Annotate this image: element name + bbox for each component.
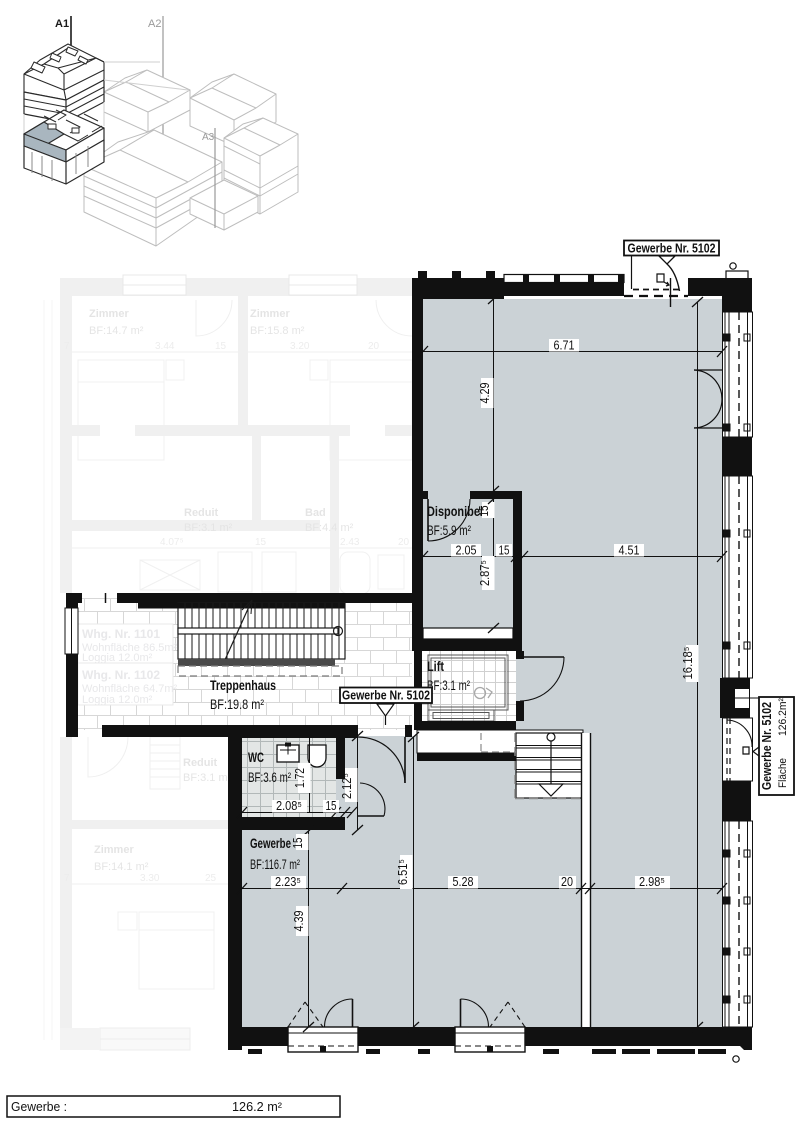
svg-text:Bad: Bad	[305, 507, 326, 519]
svg-text:15: 15	[290, 838, 305, 849]
svg-text:5.28: 5.28	[453, 874, 474, 889]
svg-text:BF:15.8 m²: BF:15.8 m²	[250, 325, 305, 337]
svg-text:4.51: 4.51	[619, 543, 640, 558]
svg-text:Gewerbe: Gewerbe	[250, 836, 291, 851]
svg-text:2.87⁵: 2.87⁵	[477, 560, 492, 586]
svg-text:BF:3.6 m²: BF:3.6 m²	[248, 770, 291, 785]
svg-text:2.08⁵: 2.08⁵	[276, 798, 302, 813]
svg-text:3.44: 3.44	[155, 341, 175, 352]
svg-text:7: 7	[64, 873, 70, 884]
svg-text:6.51⁵: 6.51⁵	[395, 859, 410, 885]
svg-text:2.12⁵: 2.12⁵	[339, 773, 354, 799]
svg-text:7: 7	[64, 341, 70, 352]
svg-text:4.39: 4.39	[291, 911, 306, 932]
svg-text:Lift: Lift	[427, 659, 444, 674]
svg-text:25: 25	[205, 873, 217, 884]
svg-text:16.18⁵: 16.18⁵	[680, 647, 695, 680]
svg-text:15: 15	[326, 798, 337, 813]
svg-text:Loggia 12.0m²: Loggia 12.0m²	[82, 652, 153, 664]
svg-text:2.23⁵: 2.23⁵	[275, 874, 301, 889]
svg-text:6.71: 6.71	[554, 338, 575, 353]
svg-text:126.2 m²: 126.2 m²	[232, 1100, 282, 1114]
svg-text:4.29: 4.29	[477, 383, 492, 404]
svg-text:Zimmer: Zimmer	[250, 308, 290, 320]
svg-text:BF:116.7 m²: BF:116.7 m²	[250, 857, 300, 872]
svg-text:BF:3.1 m²: BF:3.1 m²	[183, 772, 232, 784]
svg-text:Whg. Nr. 1102: Whg. Nr. 1102	[82, 668, 160, 682]
svg-text:Whg. Nr. 1101: Whg. Nr. 1101	[82, 627, 160, 641]
svg-text:4.07⁵: 4.07⁵	[160, 537, 184, 548]
svg-text:2.98⁵: 2.98⁵	[639, 874, 665, 889]
svg-text:BF:14.1 m²: BF:14.1 m²	[94, 861, 149, 873]
svg-text:15: 15	[215, 341, 227, 352]
svg-text:Reduit: Reduit	[183, 757, 218, 769]
svg-text:BF:4.4 m²: BF:4.4 m²	[305, 522, 354, 534]
svg-text:20: 20	[398, 537, 410, 548]
svg-text:15: 15	[476, 506, 491, 517]
svg-text:Gewerbe :: Gewerbe :	[11, 1100, 67, 1114]
svg-text:126.2m²: 126.2m²	[777, 698, 789, 736]
svg-text:A2: A2	[148, 18, 161, 30]
svg-text:Fläche: Fläche	[777, 758, 789, 788]
svg-text:15: 15	[499, 543, 510, 558]
svg-text:Zimmer: Zimmer	[94, 844, 134, 856]
svg-text:Disponibel: Disponibel	[427, 504, 483, 519]
svg-text:BF:14.7 m²: BF:14.7 m²	[89, 325, 144, 337]
svg-text:3.30: 3.30	[140, 873, 160, 884]
svg-text:BF:3.1 m²: BF:3.1 m²	[184, 522, 233, 534]
svg-text:3.20: 3.20	[290, 341, 310, 352]
svg-text:Reduit: Reduit	[184, 507, 219, 519]
svg-text:BF:5.9 m²: BF:5.9 m²	[427, 523, 471, 538]
svg-text:20: 20	[561, 874, 573, 889]
svg-text:WC: WC	[248, 750, 264, 765]
svg-text:Gewerbe Nr. 5102: Gewerbe Nr. 5102	[760, 702, 774, 790]
svg-text:Gewerbe Nr. 5102: Gewerbe Nr. 5102	[628, 242, 716, 256]
svg-text:BF:3.1 m²: BF:3.1 m²	[427, 678, 470, 693]
svg-text:20: 20	[368, 341, 380, 352]
svg-text:1.72: 1.72	[292, 768, 307, 788]
svg-text:A3: A3	[202, 132, 215, 143]
svg-text:BF:19.8 m²: BF:19.8 m²	[210, 697, 264, 712]
svg-text:2.05: 2.05	[456, 543, 477, 558]
svg-text:2.43: 2.43	[340, 537, 360, 548]
svg-text:Gewerbe Nr. 5102: Gewerbe Nr. 5102	[342, 689, 430, 703]
svg-text:Zimmer: Zimmer	[89, 308, 129, 320]
svg-text:Treppenhaus: Treppenhaus	[210, 678, 276, 693]
svg-text:Loggia 12.0m²: Loggia 12.0m²	[82, 694, 153, 706]
svg-text:A1: A1	[55, 18, 69, 30]
svg-text:15: 15	[255, 537, 267, 548]
